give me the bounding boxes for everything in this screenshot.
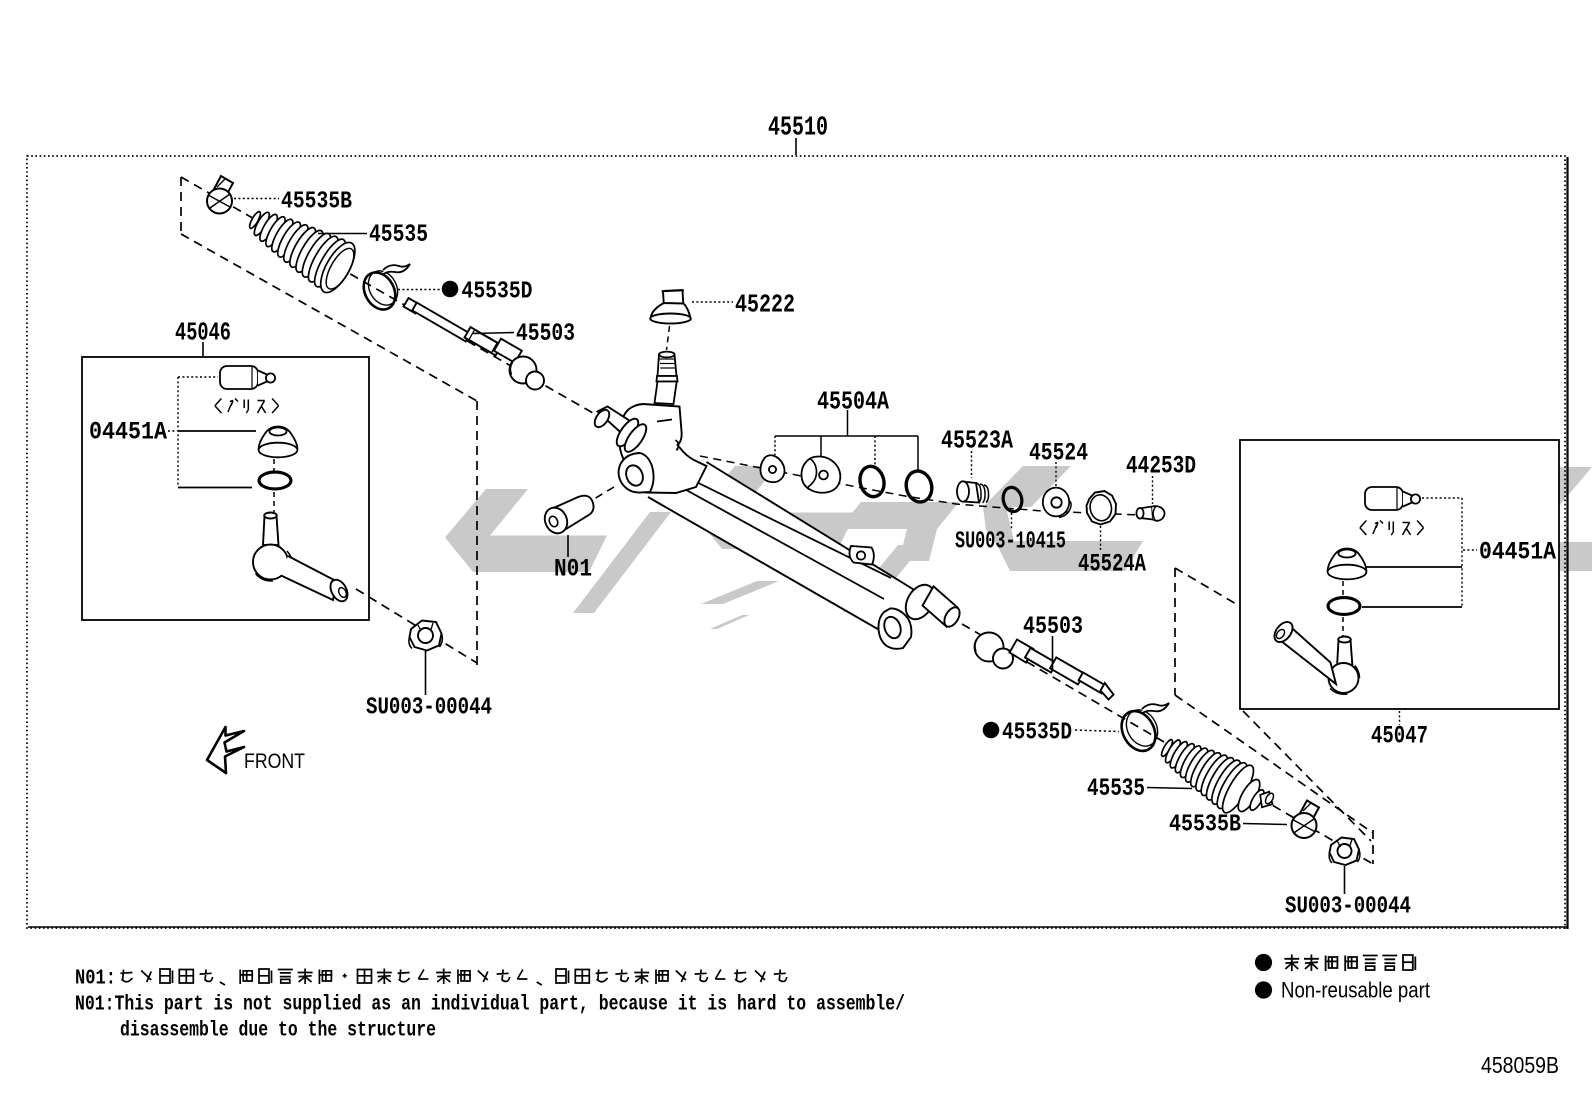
svg-text:SU003-00044: SU003-00044 <box>1285 894 1411 921</box>
svg-text:SU003-00044: SU003-00044 <box>366 695 492 722</box>
svg-text:45503: 45503 <box>516 319 575 348</box>
svg-text:SU003-10415: SU003-10415 <box>955 529 1066 556</box>
svg-text:04451A: 04451A <box>89 418 167 447</box>
svg-text:45535D: 45535D <box>1002 720 1072 747</box>
svg-text:FRONT: FRONT <box>244 750 305 773</box>
svg-text:04451A: 04451A <box>1479 538 1556 567</box>
svg-text:45535B: 45535B <box>281 189 352 216</box>
svg-text:N01:: N01: <box>75 968 116 991</box>
svg-text:45222: 45222 <box>735 290 795 320</box>
svg-text:Non-reusable part: Non-reusable part <box>1281 978 1430 1003</box>
svg-text:45535: 45535 <box>1087 774 1145 803</box>
svg-text:45523A: 45523A <box>941 426 1013 456</box>
svg-text:44253D: 44253D <box>1126 452 1196 481</box>
svg-text:45535B: 45535B <box>1169 812 1241 839</box>
svg-text:45535: 45535 <box>369 220 428 249</box>
svg-text:disassemble due to the structu: disassemble due to the structure <box>120 1020 436 1043</box>
svg-text:45047: 45047 <box>1371 722 1428 751</box>
svg-text:45504A: 45504A <box>817 387 889 417</box>
svg-text:N01: N01 <box>554 555 592 584</box>
svg-text:45524: 45524 <box>1029 439 1088 468</box>
svg-text:45510: 45510 <box>768 114 828 144</box>
svg-text:N01:This part is not supplied: N01:This part is not supplied as an indi… <box>75 994 905 1017</box>
svg-text:45524A: 45524A <box>1078 550 1146 579</box>
svg-text:458059B: 458059B <box>1481 1052 1559 1078</box>
svg-text:45535D: 45535D <box>462 279 533 306</box>
